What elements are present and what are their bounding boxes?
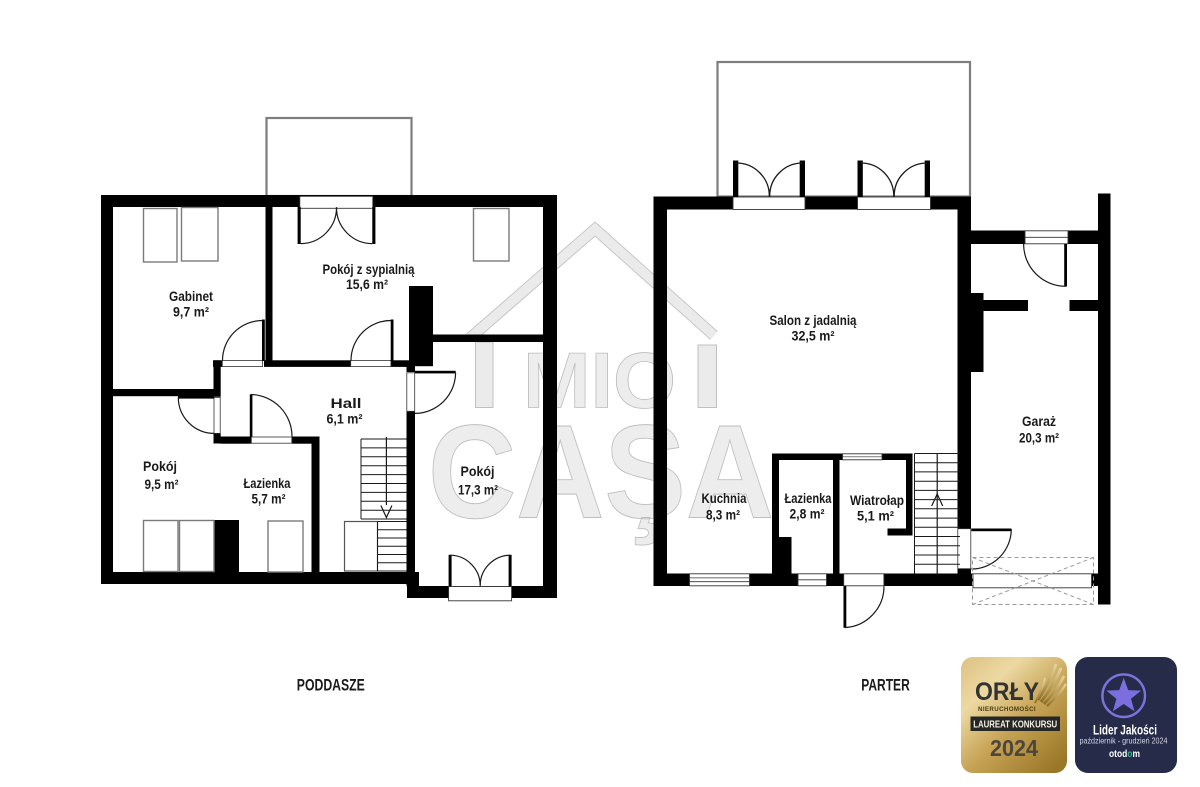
svg-text:Garaż: Garaż bbox=[1022, 413, 1056, 429]
svg-text:9,5 m²: 9,5 m² bbox=[145, 476, 179, 492]
svg-text:17,3 m²: 17,3 m² bbox=[458, 482, 498, 498]
svg-text:ORŁY: ORŁY bbox=[975, 678, 1039, 706]
svg-text:Łazienka: Łazienka bbox=[785, 490, 832, 506]
svg-text:32,5 m²: 32,5 m² bbox=[792, 328, 835, 344]
svg-text:Kuchnia: Kuchnia bbox=[702, 490, 747, 506]
svg-text:9,7 m²: 9,7 m² bbox=[173, 304, 209, 320]
svg-text:Salon z jadalnią: Salon z jadalnią bbox=[770, 312, 857, 328]
svg-text:2024: 2024 bbox=[990, 735, 1038, 761]
svg-text:otodom: otodom bbox=[1109, 748, 1140, 760]
svg-text:Gabinet: Gabinet bbox=[169, 288, 213, 304]
svg-text:PARTER: PARTER bbox=[861, 676, 910, 695]
svg-text:PODDASZE: PODDASZE bbox=[297, 676, 365, 695]
svg-text:Pokój: Pokój bbox=[143, 458, 177, 474]
svg-text:Hall: Hall bbox=[331, 395, 362, 411]
svg-text:20,3 m²: 20,3 m² bbox=[1019, 430, 1059, 446]
svg-text:5,1 m²: 5,1 m² bbox=[857, 508, 894, 524]
svg-text:LAUREAT KONKURSU: LAUREAT KONKURSU bbox=[973, 719, 1057, 730]
svg-text:Łazienka: Łazienka bbox=[244, 475, 291, 491]
svg-text:Lider Jakości: Lider Jakości bbox=[1093, 723, 1157, 738]
svg-text:Pokój: Pokój bbox=[461, 463, 495, 479]
svg-text:październik - grudzień 2024: październik - grudzień 2024 bbox=[1080, 737, 1168, 746]
svg-text:15,6 m²: 15,6 m² bbox=[346, 276, 388, 292]
svg-text:6,1 m²: 6,1 m² bbox=[327, 411, 363, 427]
svg-text:8,3 m²: 8,3 m² bbox=[706, 507, 740, 523]
svg-text:Pokój z sypialnią: Pokój z sypialnią bbox=[323, 261, 415, 277]
svg-text:2,8 m²: 2,8 m² bbox=[790, 506, 825, 522]
svg-text:Wiatrołap: Wiatrołap bbox=[850, 492, 904, 508]
svg-text:5,7 m²: 5,7 m² bbox=[252, 491, 286, 507]
svg-text:NIERUCHOMOŚCI: NIERUCHOMOŚCI bbox=[978, 704, 1036, 713]
